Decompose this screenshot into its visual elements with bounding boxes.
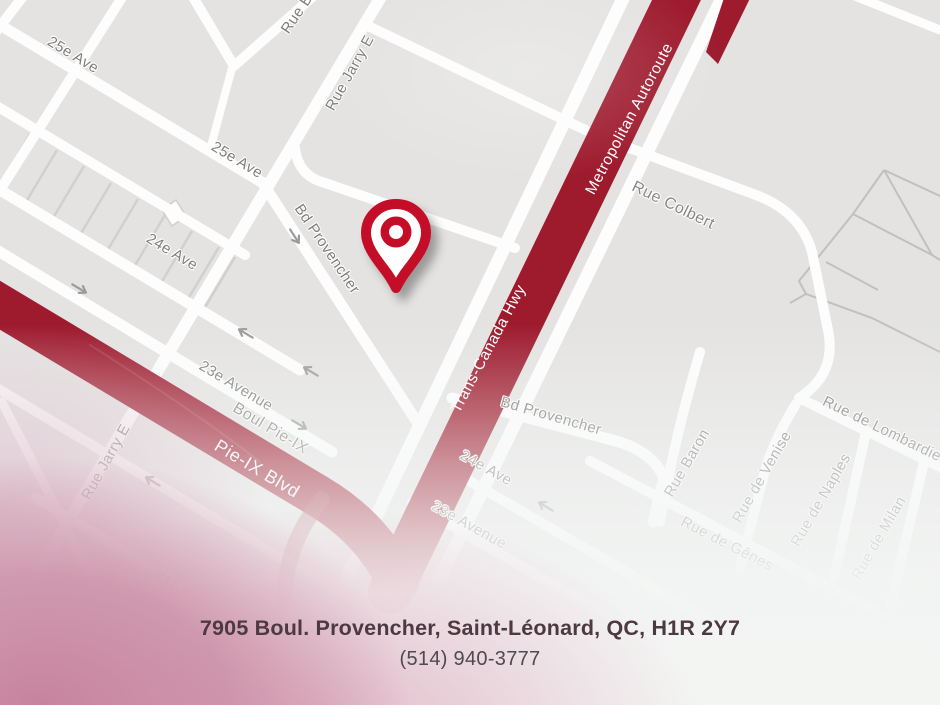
map-canvas[interactable]	[0, 0, 940, 705]
address-text: 7905 Boul. Provencher, Saint-Léonard, QC…	[0, 616, 940, 641]
map-widget: 25e Ave25e AveRue BRue Jarry EBd Provenc…	[0, 0, 940, 705]
footer: 7905 Boul. Provencher, Saint-Léonard, QC…	[0, 616, 940, 671]
phone-number: (514) 940-3777	[0, 648, 940, 671]
